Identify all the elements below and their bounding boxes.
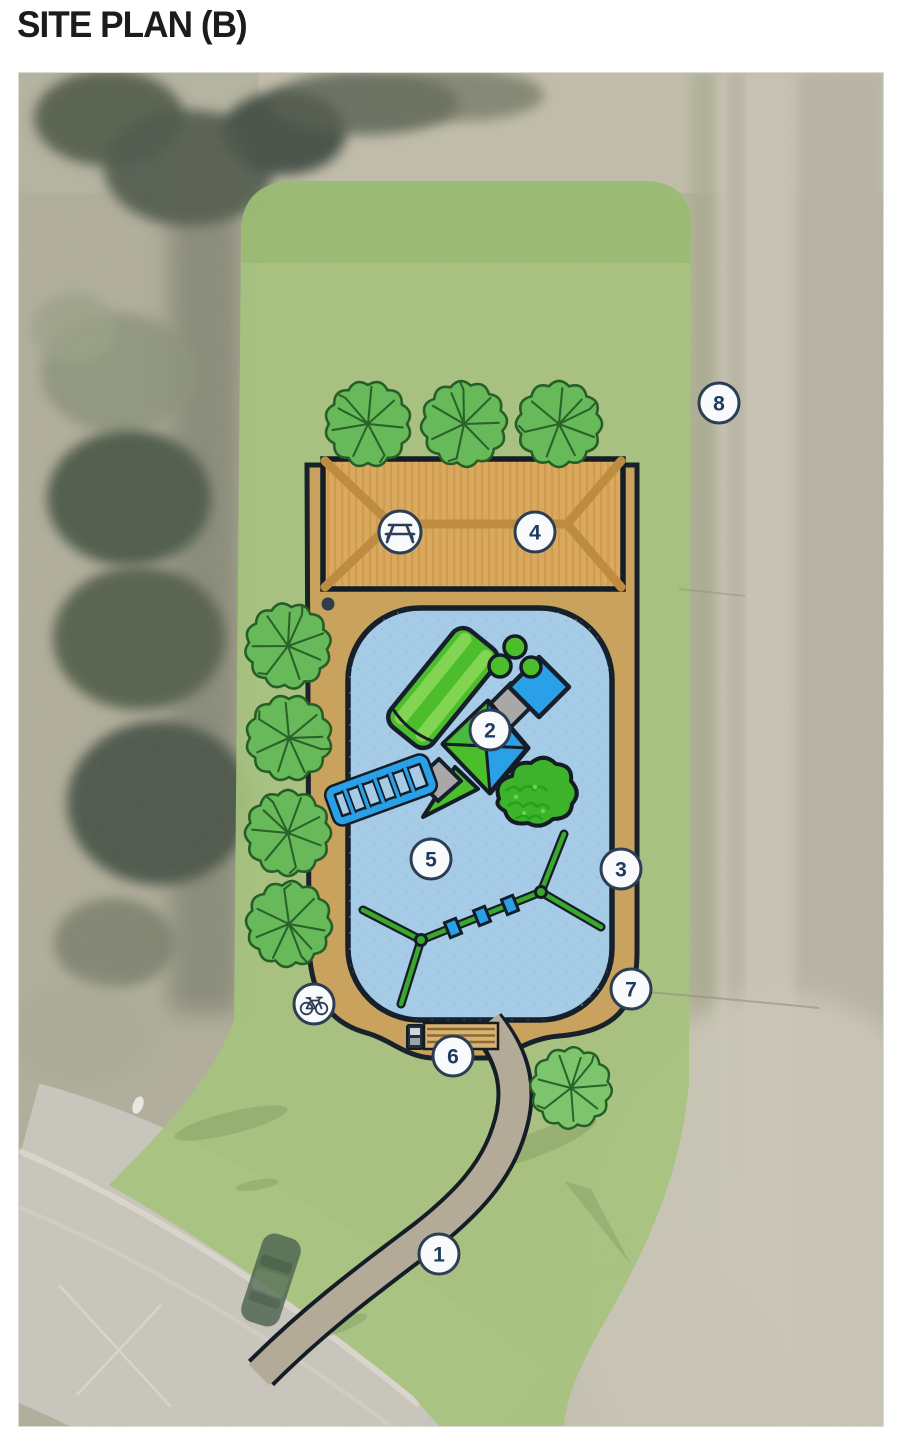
marker-8: 8 [699, 383, 739, 423]
marker-1: 1 [419, 1234, 459, 1274]
marker-6: 6 [433, 1036, 473, 1076]
marker-3: 3 [601, 849, 641, 889]
marker-3-label: 3 [615, 859, 627, 882]
marker-7-label: 7 [625, 979, 637, 1002]
marker-6-label: 6 [447, 1046, 459, 1069]
marker-4: 4 [515, 512, 555, 552]
marker-4-label: 4 [529, 522, 541, 545]
bike-rack-icon [294, 984, 334, 1024]
picnic-shelter [323, 459, 623, 589]
trash-can [407, 1025, 423, 1049]
marker-2: 2 [470, 710, 510, 750]
marker-2-label: 2 [484, 720, 496, 743]
marker-7: 7 [611, 969, 651, 1009]
site-plan-image: 1 2 3 4 5 6 7 8 [18, 72, 884, 1427]
bollard [322, 598, 335, 611]
marker-5: 5 [411, 839, 451, 879]
marker-1-label: 1 [433, 1244, 445, 1267]
tree [326, 382, 410, 466]
picnic-table-icon [379, 511, 421, 553]
page-title: SITE PLAN (B) [17, 4, 247, 46]
marker-5-label: 5 [425, 849, 437, 872]
marker-8-label: 8 [713, 393, 725, 416]
site-plan-svg: 1 2 3 4 5 6 7 8 [19, 73, 883, 1426]
